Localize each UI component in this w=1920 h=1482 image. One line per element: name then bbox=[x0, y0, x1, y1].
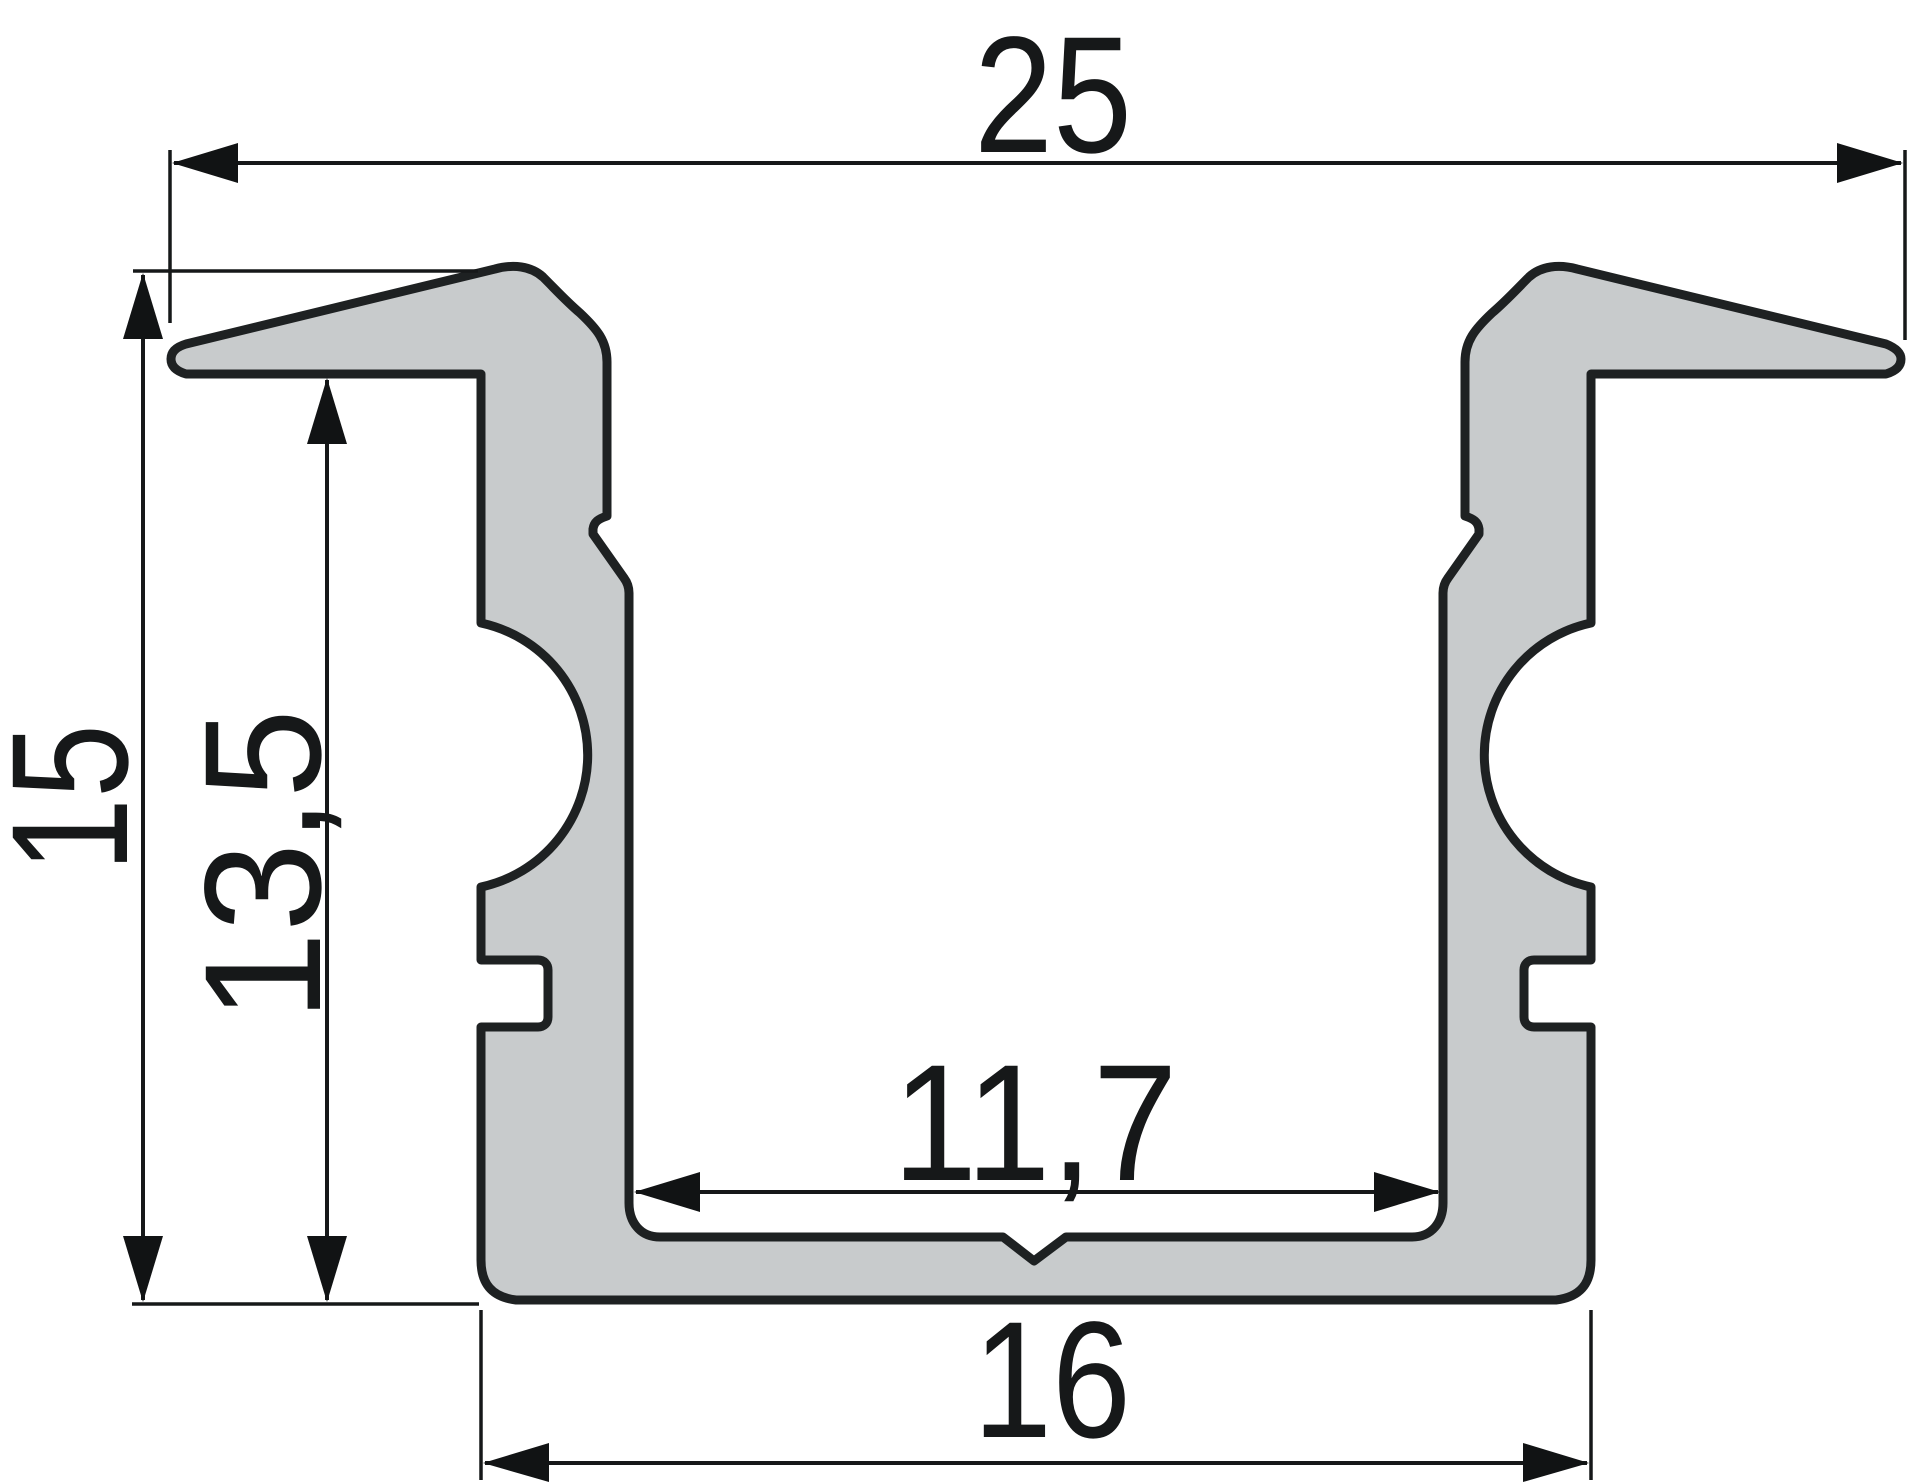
dim-16-label: 16 bbox=[973, 1288, 1131, 1473]
dim-25-label: 25 bbox=[974, 3, 1132, 188]
technical-drawing-page: 25 15 13,5 11,7 bbox=[0, 0, 1920, 1482]
dim-11-7-label: 11,7 bbox=[893, 1031, 1178, 1216]
dim-15-label: 15 bbox=[0, 724, 163, 872]
dim-13-5-label: 13,5 bbox=[171, 709, 356, 1021]
technical-drawing-canvas: 25 15 13,5 11,7 bbox=[0, 0, 1920, 1482]
